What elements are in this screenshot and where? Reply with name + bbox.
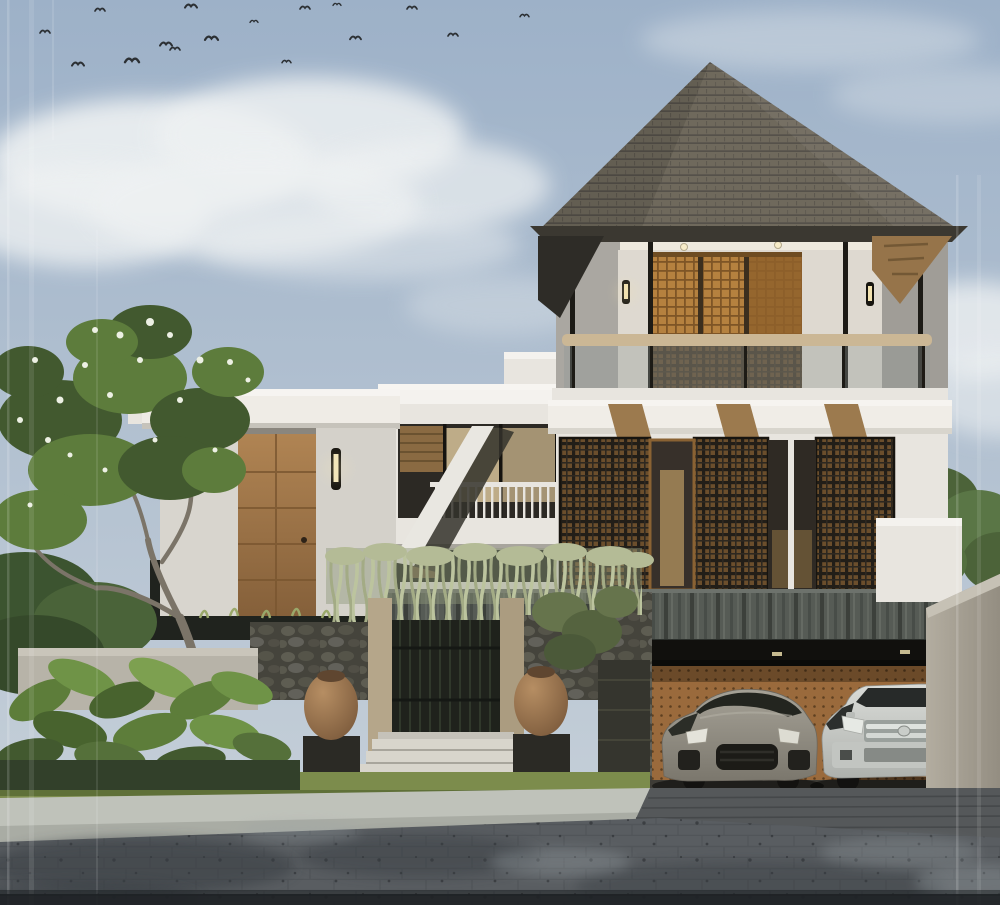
ground [0,772,1000,905]
balcony-lamp [866,282,874,306]
grille [716,744,778,770]
bottom-vignette [0,894,1000,905]
soffit-light [772,652,782,656]
gate-lattice [392,620,500,750]
brand-logo [898,726,910,736]
downlight [775,242,782,249]
scene [0,0,1000,905]
wood-handrail [562,334,932,346]
door-handle [301,537,307,543]
glass-panel [768,440,816,590]
glass-door [650,440,694,590]
windshield [856,688,938,707]
render-canvas [0,0,1000,905]
white-wall-block [876,518,962,602]
lattice-screen [694,438,768,590]
downlight [681,244,688,251]
soffit-light [900,650,910,654]
